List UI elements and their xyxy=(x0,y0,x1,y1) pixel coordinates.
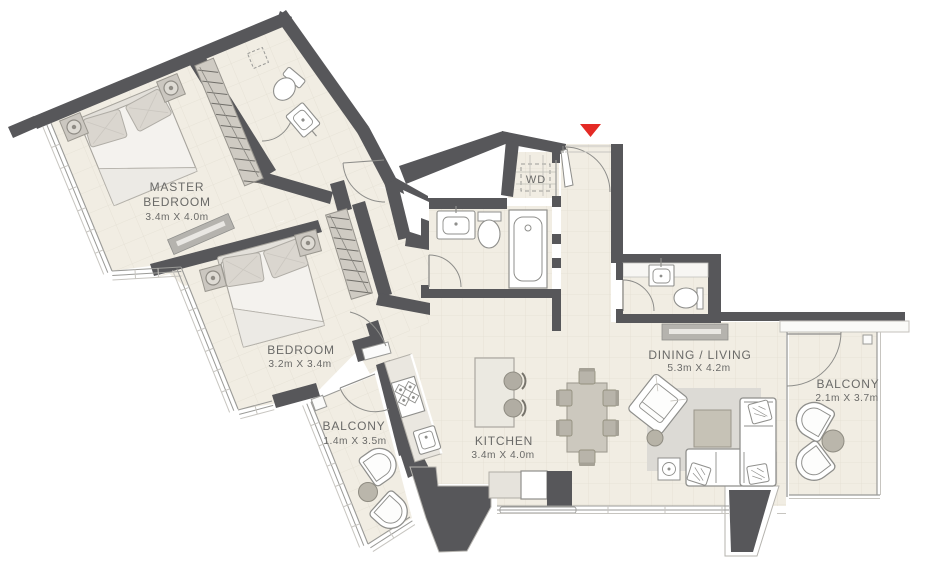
svg-text:WD: WD xyxy=(526,174,546,186)
svg-text:BEDROOM: BEDROOM xyxy=(143,195,211,209)
svg-text:BEDROOM: BEDROOM xyxy=(267,343,335,357)
svg-text:1.4m X 3.5m: 1.4m X 3.5m xyxy=(323,436,386,447)
svg-text:5.3m X 4.2m: 5.3m X 4.2m xyxy=(667,363,730,374)
svg-text:3.4m X 4.0m: 3.4m X 4.0m xyxy=(145,212,208,223)
svg-text:KITCHEN: KITCHEN xyxy=(475,434,533,448)
svg-text:MASTER: MASTER xyxy=(150,180,205,194)
svg-text:DINING / LIVING: DINING / LIVING xyxy=(648,348,751,362)
svg-text:BALCONY: BALCONY xyxy=(323,419,386,433)
svg-text:3.2m X 3.4m: 3.2m X 3.4m xyxy=(268,359,331,370)
svg-text:3.4m X 4.0m: 3.4m X 4.0m xyxy=(471,450,534,461)
svg-text:BALCONY: BALCONY xyxy=(817,377,880,391)
svg-text:2.1m X 3.7m: 2.1m X 3.7m xyxy=(815,393,878,404)
